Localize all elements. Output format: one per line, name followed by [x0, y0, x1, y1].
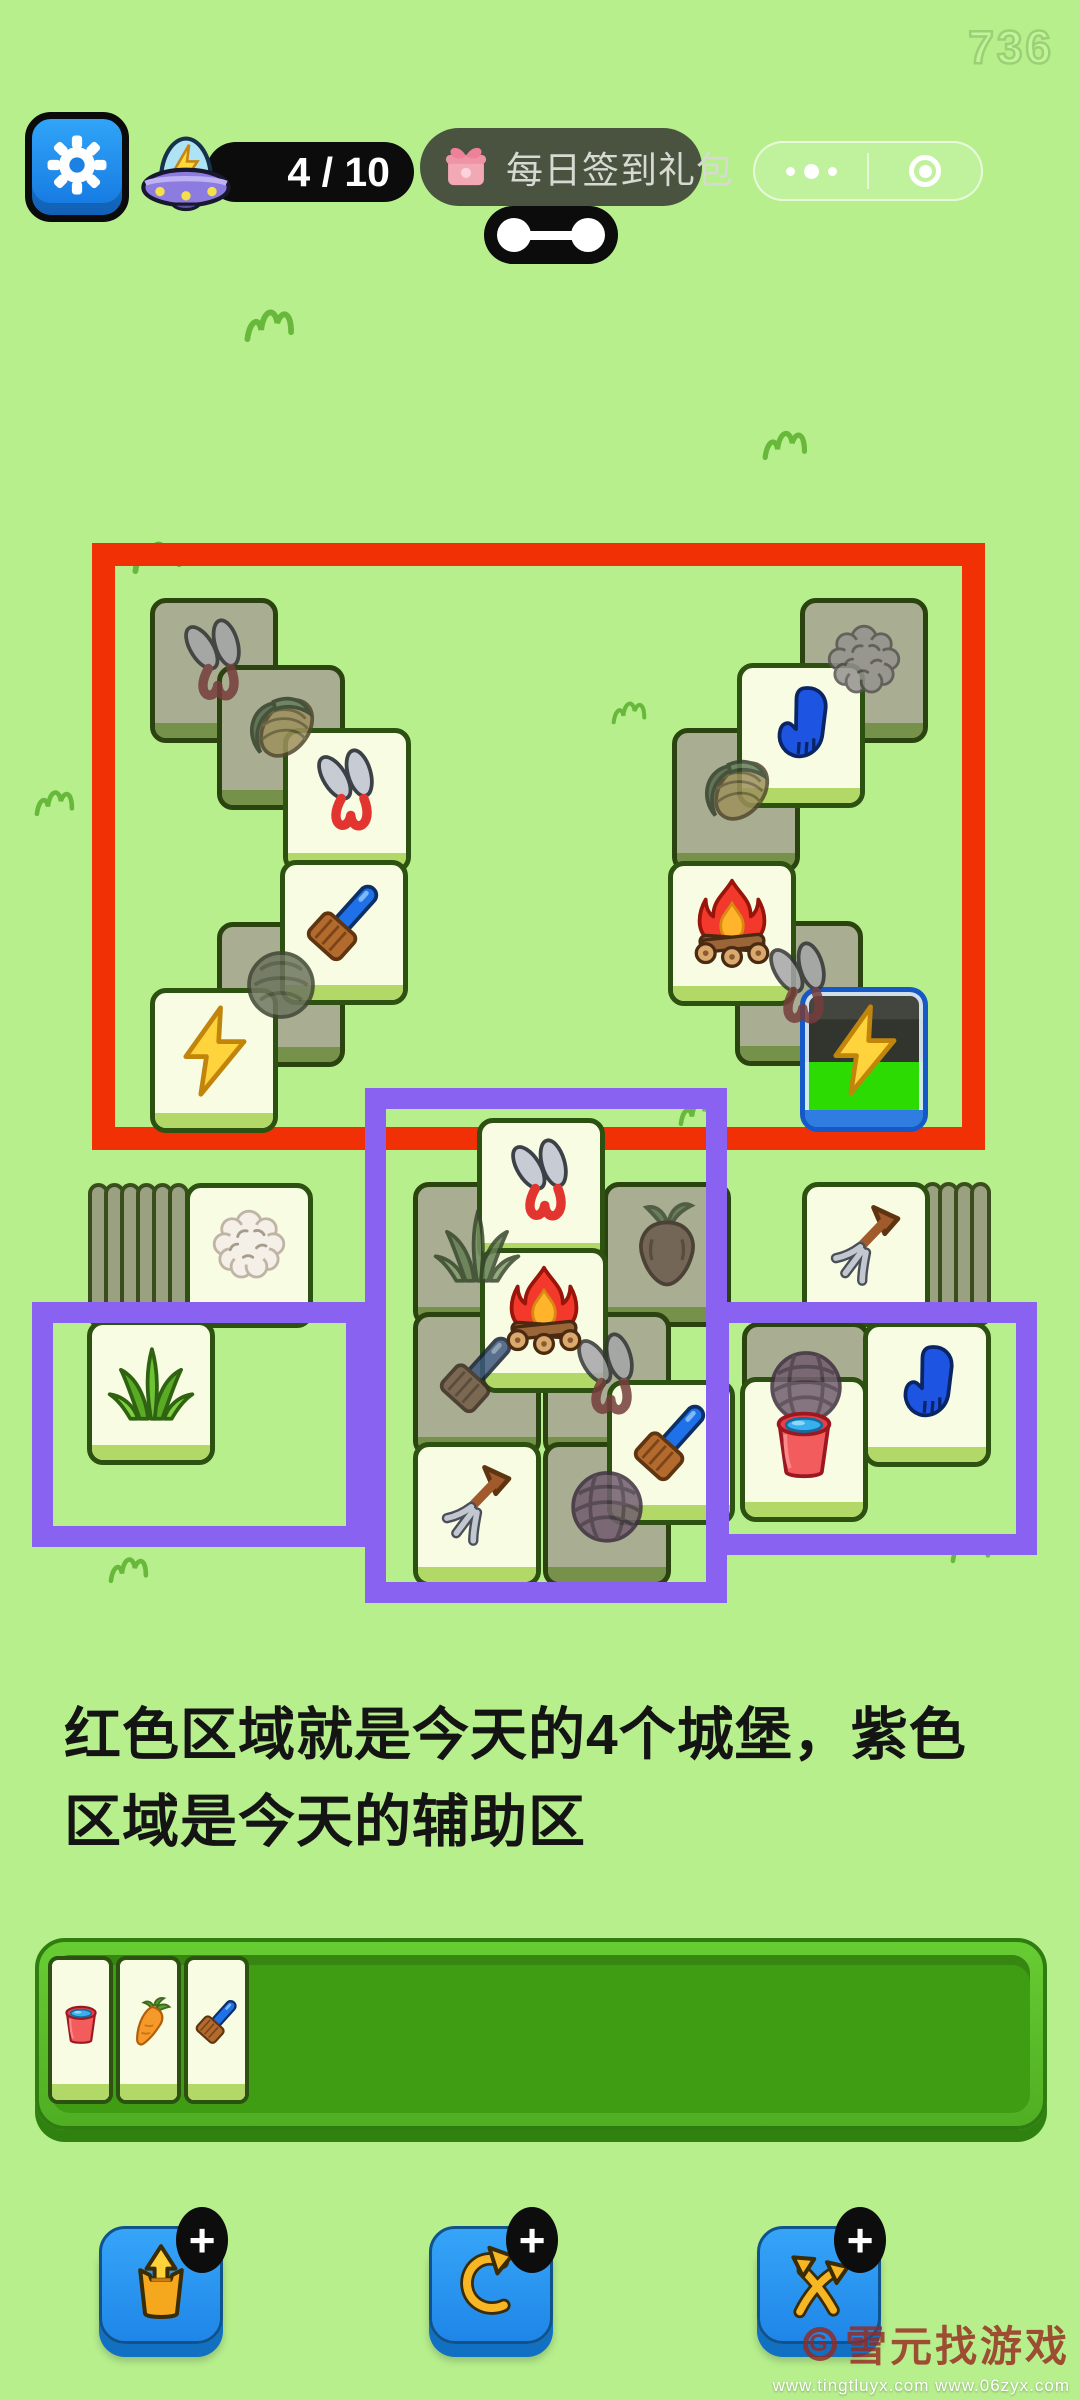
tile-shears[interactable] — [283, 728, 411, 873]
plus-badge[interactable]: + — [176, 2207, 228, 2273]
watermark-logo-icon: G — [803, 2327, 837, 2361]
daily-signin-button[interactable]: 每日签到礼包 — [420, 128, 702, 206]
aux-zone-left — [32, 1302, 367, 1547]
watermark-logo: G 雪元找游戏 — [773, 2313, 1070, 2374]
lightning-icon — [817, 1003, 911, 1116]
shears-icon — [300, 744, 394, 857]
gear-icon — [45, 133, 109, 202]
plus-badge[interactable]: + — [506, 2207, 558, 2273]
miniprogram-capsule — [753, 141, 983, 201]
lightning-icon — [167, 1004, 261, 1117]
game-screen: { "meta": { "score": "736", "bg": "#b7ef… — [0, 0, 1080, 2400]
guide-caption-line2: 区域是今天的辅助区 — [64, 1779, 1034, 1866]
energy-counter-value: 4 / 10 — [287, 149, 390, 196]
close-minimize-button[interactable] — [869, 143, 981, 199]
undo-button[interactable]: + — [429, 2226, 553, 2344]
more-dots-icon — [786, 167, 795, 176]
more-menu-button[interactable] — [755, 143, 867, 199]
more-dots-icon — [828, 167, 837, 176]
popout-button[interactable]: + — [99, 2226, 223, 2344]
guide-caption: 红色区域就是今天的4个城堡，紫色 区域是今天的辅助区 — [64, 1692, 1034, 1865]
daily-signin-label: 每日签到礼包 — [506, 140, 734, 194]
slot-tile-bucket — [48, 1956, 113, 2104]
plus-badge[interactable]: + — [834, 2207, 886, 2273]
slot-tile-carrot — [116, 1956, 181, 2104]
bucket-icon — [54, 1995, 108, 2066]
brush-icon — [190, 1995, 244, 2066]
grass-doodle — [105, 1550, 161, 1587]
pitchfork-icon — [819, 1198, 913, 1311]
guide-caption-line1: 红色区域就是今天的4个城堡，紫色 — [64, 1692, 1034, 1779]
tile-lightning[interactable] — [150, 988, 278, 1133]
grass-doodle — [31, 783, 87, 820]
site-watermark: G 雪元找游戏 www.tingtluyx.com www.06zyx.com — [773, 2313, 1070, 2396]
record-circle-icon — [909, 155, 941, 187]
score-watermark: 736 — [968, 20, 1054, 74]
grass-doodle — [240, 300, 310, 346]
cauliflower-icon — [202, 1199, 296, 1312]
watermark-urls: www.tingtluyx.com www.06zyx.com — [773, 2376, 1070, 2396]
gift-icon — [438, 137, 494, 198]
carrot-icon — [122, 1995, 176, 2066]
more-dots-icon — [804, 164, 819, 179]
grass-doodle — [759, 422, 822, 463]
ufo-energy-icon — [134, 124, 238, 214]
tile-lightning[interactable] — [800, 987, 928, 1132]
slot-tile-brush — [184, 1956, 249, 2104]
bone-toggle[interactable] — [484, 206, 618, 264]
settings-button[interactable] — [25, 112, 129, 222]
